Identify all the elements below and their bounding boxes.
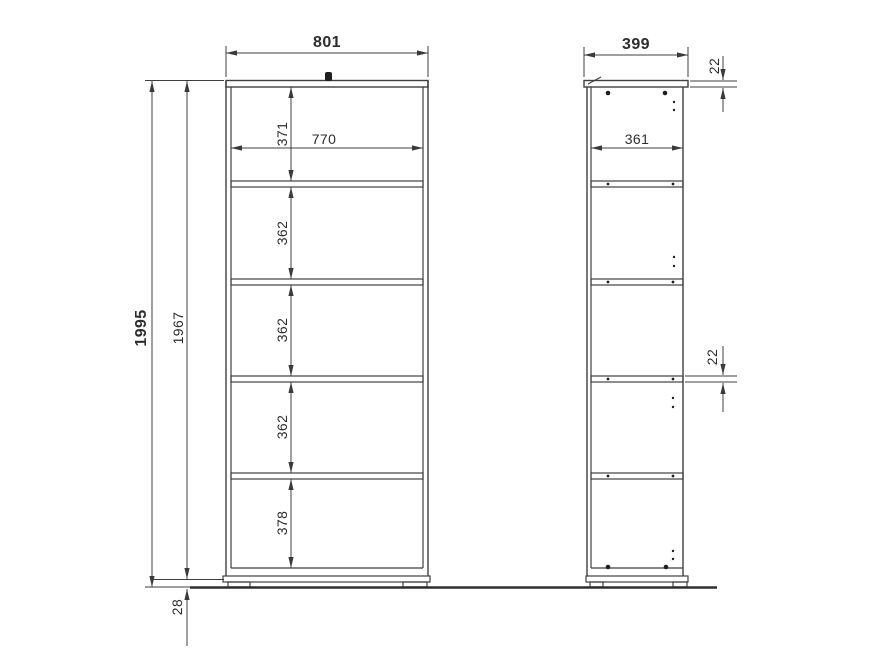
dim-label-compartment-2: 362 [275, 221, 289, 246]
dim-label-compartment-3: 362 [275, 318, 289, 343]
dim-label-top-thickness: 22 [707, 58, 721, 74]
dim-label-plinth-height: 28 [170, 599, 184, 615]
side-view-cabinet [584, 77, 688, 587]
dim-label-compartment-5: 378 [275, 511, 289, 536]
shelf-dowel-dots [607, 183, 675, 478]
dim-label-overall-width: 801 [313, 35, 341, 51]
shelf-pin-holes [672, 101, 675, 560]
front-plinth [223, 576, 430, 582]
dim-label-overall-height: 1995 [134, 309, 150, 346]
dim-plinth-height-28 [145, 587, 190, 646]
dim-label-compartment-4: 362 [275, 415, 289, 440]
dim-label-interior-width: 770 [312, 132, 337, 146]
dim-cabinet-height-1967 [150, 81, 224, 580]
furniture-dimension-drawing: 801 770 371 362 362 362 378 1995 1967 28… [0, 0, 876, 657]
wall-mount-fitting [325, 72, 332, 81]
dim-label-cabinet-height: 1967 [171, 312, 185, 345]
dim-label-overall-depth: 399 [622, 37, 650, 53]
side-shelves [591, 181, 683, 479]
dim-label-compartment-1: 371 [275, 122, 289, 147]
drawing-canvas [0, 0, 876, 657]
dim-label-interior-depth: 361 [625, 132, 650, 146]
dim-label-shelf-thickness: 22 [705, 349, 719, 365]
side-plinth [586, 576, 688, 582]
cam-fitting-holes [606, 91, 669, 570]
front-shelves [231, 181, 423, 479]
front-view-cabinet [223, 72, 430, 587]
